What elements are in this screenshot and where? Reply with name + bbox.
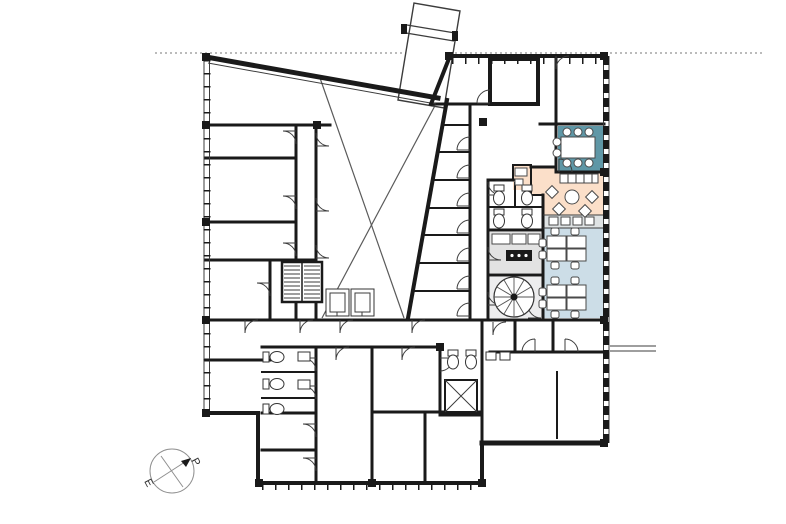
toilet-tank [263,352,269,362]
chair [563,128,571,136]
sink [486,352,496,360]
floor-plan-canvas: P E [0,0,786,524]
sink [298,352,310,361]
toilet-bowl [494,214,505,228]
secure-room [490,59,538,104]
toilet-tank [494,185,504,191]
toilet-tank [263,379,269,389]
desk [567,249,586,261]
toilet-bowl [494,191,505,205]
compass-south-label: E [141,477,155,489]
kitchen-counter [492,234,510,244]
toilet-bowl [270,404,284,415]
floor-plan-drawing: P E [0,0,786,524]
task-chair [539,300,546,308]
task-chair [571,311,579,318]
meeting-table [561,137,595,158]
desk [547,285,566,297]
toilet-bowl [270,379,284,390]
task-chair [571,228,579,235]
toilet-bowl [466,355,477,369]
task-chair [539,251,546,259]
task-chair [539,239,546,247]
sink [500,352,510,360]
chair [563,159,571,167]
chair [574,159,582,167]
compass-rose: P E [141,449,202,493]
toilet-bowl [522,214,533,228]
kitchen-sink [512,234,526,244]
chair [585,128,593,136]
task-chair [551,228,559,235]
elevators [326,289,374,316]
toilet-bowl [522,191,533,205]
coffee-counter [515,168,527,176]
bench-seat [573,217,582,225]
vent-shaft [445,380,477,412]
main-staircase [282,262,322,302]
spiral-staircase [494,277,534,317]
task-chair [551,277,559,284]
walkway-support-left [401,24,407,34]
toilet-bowl [448,355,459,369]
walkway-support-right [452,31,458,41]
desk [567,298,586,310]
round-table [565,190,579,204]
task-chair [551,311,559,318]
desk [567,236,586,248]
toilet-tank [263,404,269,414]
chair [553,149,561,157]
bench-seat [549,217,558,225]
bench-seat [561,217,570,225]
toilet-tank [522,185,532,191]
toilet-bowl [270,352,284,363]
chair [574,128,582,136]
compass-north-label: P [188,456,202,468]
task-chair [551,262,559,269]
interior-walls [206,56,604,483]
atrium-void-cross [320,78,438,318]
desk [547,249,566,261]
desk [547,236,566,248]
chair [553,138,561,146]
task-chair [571,277,579,284]
desk [547,298,566,310]
kitchen-counter [528,234,540,244]
chair [585,159,593,167]
task-chair [571,262,579,269]
bench-seat [585,217,594,225]
sink [298,380,310,389]
task-chair [539,288,546,296]
wc-cluster-mid-south [448,350,511,369]
desk [567,285,586,297]
east-canopy-stub [610,346,656,351]
coffee-machine [515,179,523,185]
